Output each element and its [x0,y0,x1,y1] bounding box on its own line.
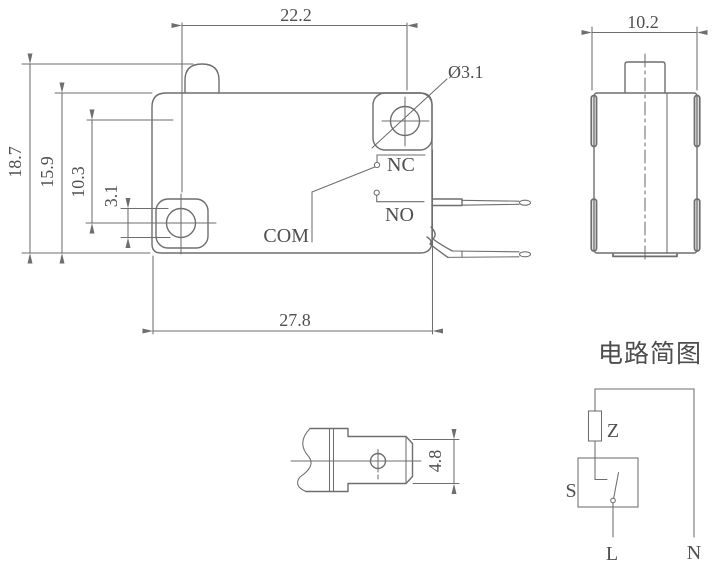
terminal-upper-stub [432,199,462,206]
no-contact-point [374,190,379,195]
dim-3-1: 3.1 [101,185,121,208]
circuit-diagram: 电路简图 Z S L N [565,339,702,565]
dim-4-8: 4.8 [425,450,445,473]
terminal-lower-blade-bottom [448,257,519,258]
switch-box [578,458,638,507]
circuit-title: 电路简图 [598,339,702,368]
terminal-upper-blade-bottom [462,204,519,205]
side-view: 10.2 [591,12,699,263]
dim-27-8: 27.8 [279,310,311,330]
live-label: L [606,543,618,565]
microswitch-drawing: NC NO COM 22.2 18.7 15.9 10.3 [0,0,720,567]
technical-drawing-page: NC NO COM 22.2 18.7 15.9 10.3 [0,0,720,567]
terminal-detail-outline [306,429,413,492]
common-contact-arm [312,167,375,242]
dia-leader-line [372,79,447,148]
load-label: Z [607,420,619,442]
switch-label: S [565,480,576,502]
dim-22-2: 22.2 [280,5,312,25]
load-resistor [589,411,602,441]
front-view: NC NO COM 22.2 18.7 15.9 10.3 [5,5,531,334]
dim-18-7: 18.7 [5,146,25,178]
dim-10-2: 10.2 [627,12,659,32]
circuit-top-wire [595,389,694,537]
dim-15-9: 15.9 [37,156,57,188]
terminal-upper-blade-top [462,200,519,201]
switch-pivot [611,498,616,503]
dia-label: Ø3.1 [448,62,484,82]
terminal-upper-tip [520,200,531,205]
dim-10-3: 10.3 [68,166,88,198]
terminal-lower-tip [520,252,531,257]
no-label: NO [385,204,414,226]
terminal-detail-view: 4.8 [291,429,459,492]
com-label: COM [263,225,309,247]
break-line [298,429,312,492]
neutral-label: N [687,542,701,564]
no-contact-bracket [377,195,424,201]
switch-blade [614,473,619,499]
plunger-button [185,64,219,93]
nc-label: NC [387,154,415,176]
